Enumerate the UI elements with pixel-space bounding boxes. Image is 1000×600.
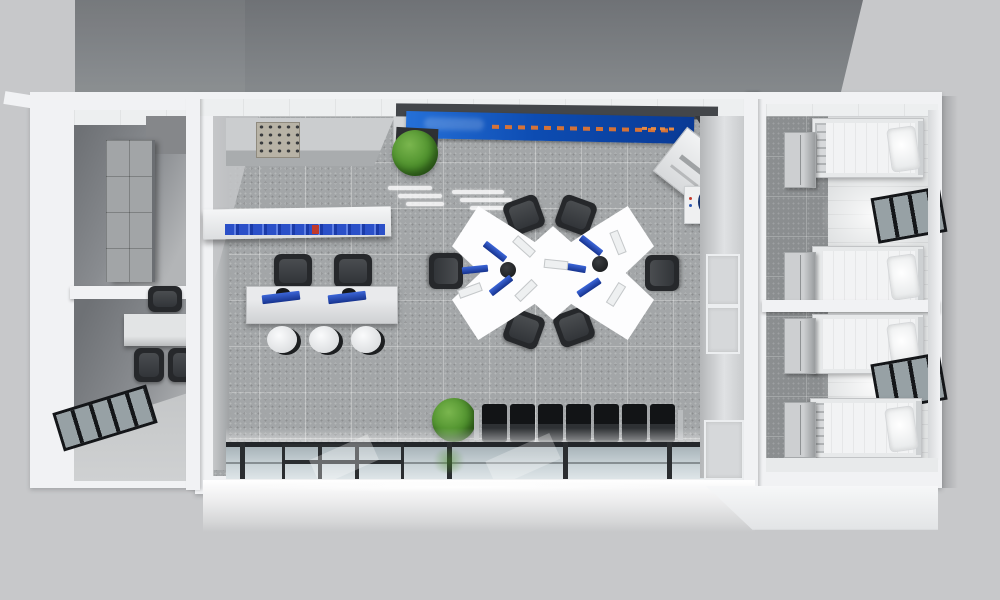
divider-wall-center-right xyxy=(744,92,758,492)
plant-reflection xyxy=(432,449,466,473)
round-stool xyxy=(351,326,381,353)
light-reflection xyxy=(406,202,444,206)
desk-cable-hub xyxy=(592,256,608,272)
facade-mullion xyxy=(240,442,245,480)
round-stool xyxy=(267,326,297,353)
small-office-wall-desk xyxy=(124,314,190,346)
pillow xyxy=(884,405,919,453)
shelf-red-binder xyxy=(312,225,319,234)
bedside-locker xyxy=(784,132,816,188)
office-chair xyxy=(134,348,164,382)
dorm-bottom-wall xyxy=(766,458,938,472)
dorm-bed xyxy=(812,246,924,306)
wall-door-panel xyxy=(706,254,740,306)
render-stage xyxy=(0,0,1000,600)
shelf-blue-binders xyxy=(225,224,385,235)
dorm-ceiling xyxy=(766,104,938,116)
foot-rail xyxy=(815,123,826,173)
bedside-locker xyxy=(784,402,816,458)
pillow xyxy=(886,253,921,301)
ground-shadow-right xyxy=(942,96,958,488)
dorm-bed xyxy=(812,118,924,178)
light-reflection xyxy=(460,198,512,202)
wall-counter xyxy=(226,118,394,166)
pillow xyxy=(886,125,921,173)
facade-mullion xyxy=(667,442,672,480)
potted-plant xyxy=(392,130,438,176)
wall-cabinet-panel xyxy=(704,420,744,480)
cooler-led-red xyxy=(689,197,692,200)
storage-shelf-cabinet xyxy=(106,140,152,282)
dorm-right-wall xyxy=(928,110,940,460)
office-chair xyxy=(148,286,182,312)
task-chair xyxy=(334,254,372,288)
round-stool xyxy=(309,326,339,353)
bedside-locker xyxy=(784,318,816,374)
task-chair xyxy=(274,254,312,288)
entrance-platform-glow xyxy=(240,482,680,492)
dorm-divider-wall xyxy=(762,300,940,312)
cooler-led-blue xyxy=(689,204,692,207)
reception-counter xyxy=(246,286,398,324)
building-top-edge xyxy=(30,92,942,99)
divider-wall-left-center xyxy=(186,94,200,490)
x-shaped-desk xyxy=(452,206,654,340)
facade-floor-glow xyxy=(226,428,744,442)
control-panel xyxy=(256,122,300,158)
facade-mullion xyxy=(563,442,568,480)
light-reflection xyxy=(452,190,504,194)
light-reflection xyxy=(388,186,432,190)
backdrop-seam xyxy=(75,0,245,96)
dorm-bed xyxy=(810,398,922,458)
wall-door-panel xyxy=(706,306,740,354)
light-reflection xyxy=(398,194,442,198)
workstation-chair xyxy=(645,255,679,291)
glass-facade xyxy=(226,442,744,480)
storage-concrete-block xyxy=(146,116,186,154)
workstation-chair xyxy=(429,253,463,289)
